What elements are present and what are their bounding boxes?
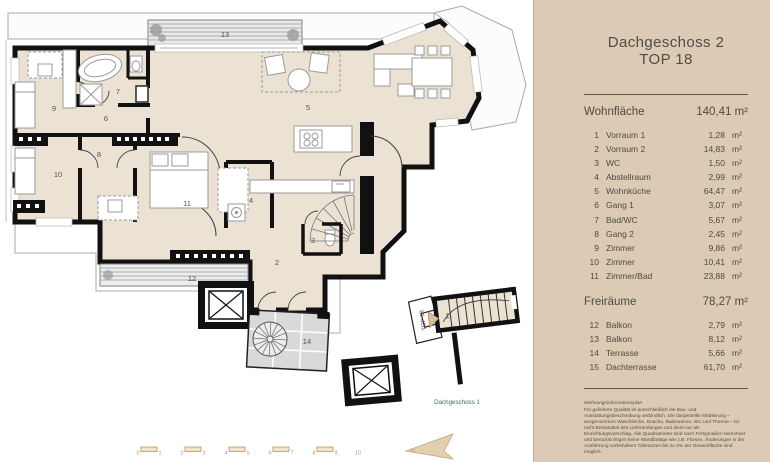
plant-icon [150,24,162,36]
area-row: 9Zimmer9,86m² [584,241,748,255]
area-row: 12Balkon2,79m² [584,318,748,332]
area-row: 3WC1,50m² [584,156,748,170]
wohnflaeche-total-row: Wohnfläche 140,41 m² [584,106,748,118]
room-label-12: 12 [188,274,196,283]
room-label-9: 9 [52,104,56,113]
footnote: Wohnungsinformationsplan Für gelieferte … [584,401,748,455]
area-row: 14Terrasse5,66m² [584,346,748,360]
plan-title: Dachgeschoss 2 TOP 18 [584,34,748,68]
area-row: 6Gang 13,07m² [584,198,748,212]
area-row: 2Vorraum 214,83m² [584,142,748,156]
scale-tick-label: 10 [355,451,361,457]
info-panel: Dachgeschoss 2 TOP 18 Wohnfläche 140,41 … [533,0,770,462]
footnote-title: Wohnungsinformationsplan [584,401,748,407]
room-label-11: 11 [183,199,191,208]
room-label-13: 13 [221,30,229,39]
scale-bar-segment [317,447,333,452]
scale-tick-label: 8 [312,451,315,457]
area-row: 11Zimmer/Bad23,88m² [584,269,748,283]
area-row: 13Balkon8,12m² [584,332,748,346]
room-label-2: 2 [275,258,279,267]
scale-tick-label: 2 [180,451,183,457]
freiraeume-list: 12Balkon2,79m²13Balkon8,12m²14Terrasse5,… [584,318,748,374]
room-label-7: 7 [116,87,120,96]
divider-top [584,94,748,95]
page: 13 [0,0,770,462]
area-row: 1Vorraum 11,28m² [584,128,748,142]
room-label-3: 3 [311,236,315,245]
scale-tick-label: 4 [224,451,227,457]
north-label: N [411,449,415,455]
plant-icon [287,29,299,41]
scale-tick-label: 5 [246,451,249,457]
scale-tick-label: 3 [202,451,205,457]
scale-bar-segment [185,447,201,452]
terrace-14: 14 [247,308,330,371]
area-row: 5Wohnküche64,47m² [584,184,748,198]
divider-bottom [584,388,748,389]
footnote-text: Für gelieferte Qualität ist ausschließli… [584,408,748,455]
floor-below-label: Dachgeschoss 1 [434,399,480,406]
room-label-10: 10 [54,170,62,179]
plant-icon [103,270,113,280]
freiraeume-label: Freiräume [584,296,636,308]
scale-bar-segment [229,447,245,452]
scale-bar-segment [141,447,157,452]
area-row: 7Bad/WC5,67m² [584,213,748,227]
room-label-14: 14 [303,337,312,346]
balcony-13: 13 [148,20,302,46]
scale-tick-label: 1 [158,451,161,457]
elevator-shaft-2 [341,355,402,407]
room-label-5: 5 [306,103,310,112]
room-label-6: 6 [104,114,108,123]
area-row: 4Abstellraum2,99m² [584,170,748,184]
freiraeume-total: 78,27 m² [703,296,748,308]
area-row: 15Dachterrasse61,70m² [584,360,748,374]
room-label-4: 4 [249,196,253,205]
north-arrow-icon: N [406,434,453,459]
wohnflaeche-list: 1Vorraum 11,28m²2Vorraum 214,83m²3WC1,50… [584,128,748,283]
area-row: 8Gang 22,45m² [584,227,748,241]
scale-tick-label: 9 [334,451,337,457]
scale-bar-segment [273,447,289,452]
scale-bar: 012345678910 [136,447,361,457]
plan-title-unit: TOP 18 [584,51,748,68]
elevator-shaft [198,281,254,329]
freiraeume-total-row: Freiräume 78,27 m² [584,296,748,308]
floor-below-fragment: 1 TOP 18 [408,286,525,389]
floor-plan: 13 [0,0,540,462]
scale-tick-label: 0 [136,451,139,457]
wohnflaeche-label: Wohnfläche [584,106,645,118]
wohnflaeche-total: 140,41 m² [696,106,748,118]
scale-tick-label: 7 [290,451,293,457]
area-row: 10Zimmer10,41m² [584,255,748,269]
plan-title-floor: Dachgeschoss 2 [584,34,748,51]
scale-tick-label: 6 [268,451,271,457]
room-label-8: 8 [97,150,101,159]
